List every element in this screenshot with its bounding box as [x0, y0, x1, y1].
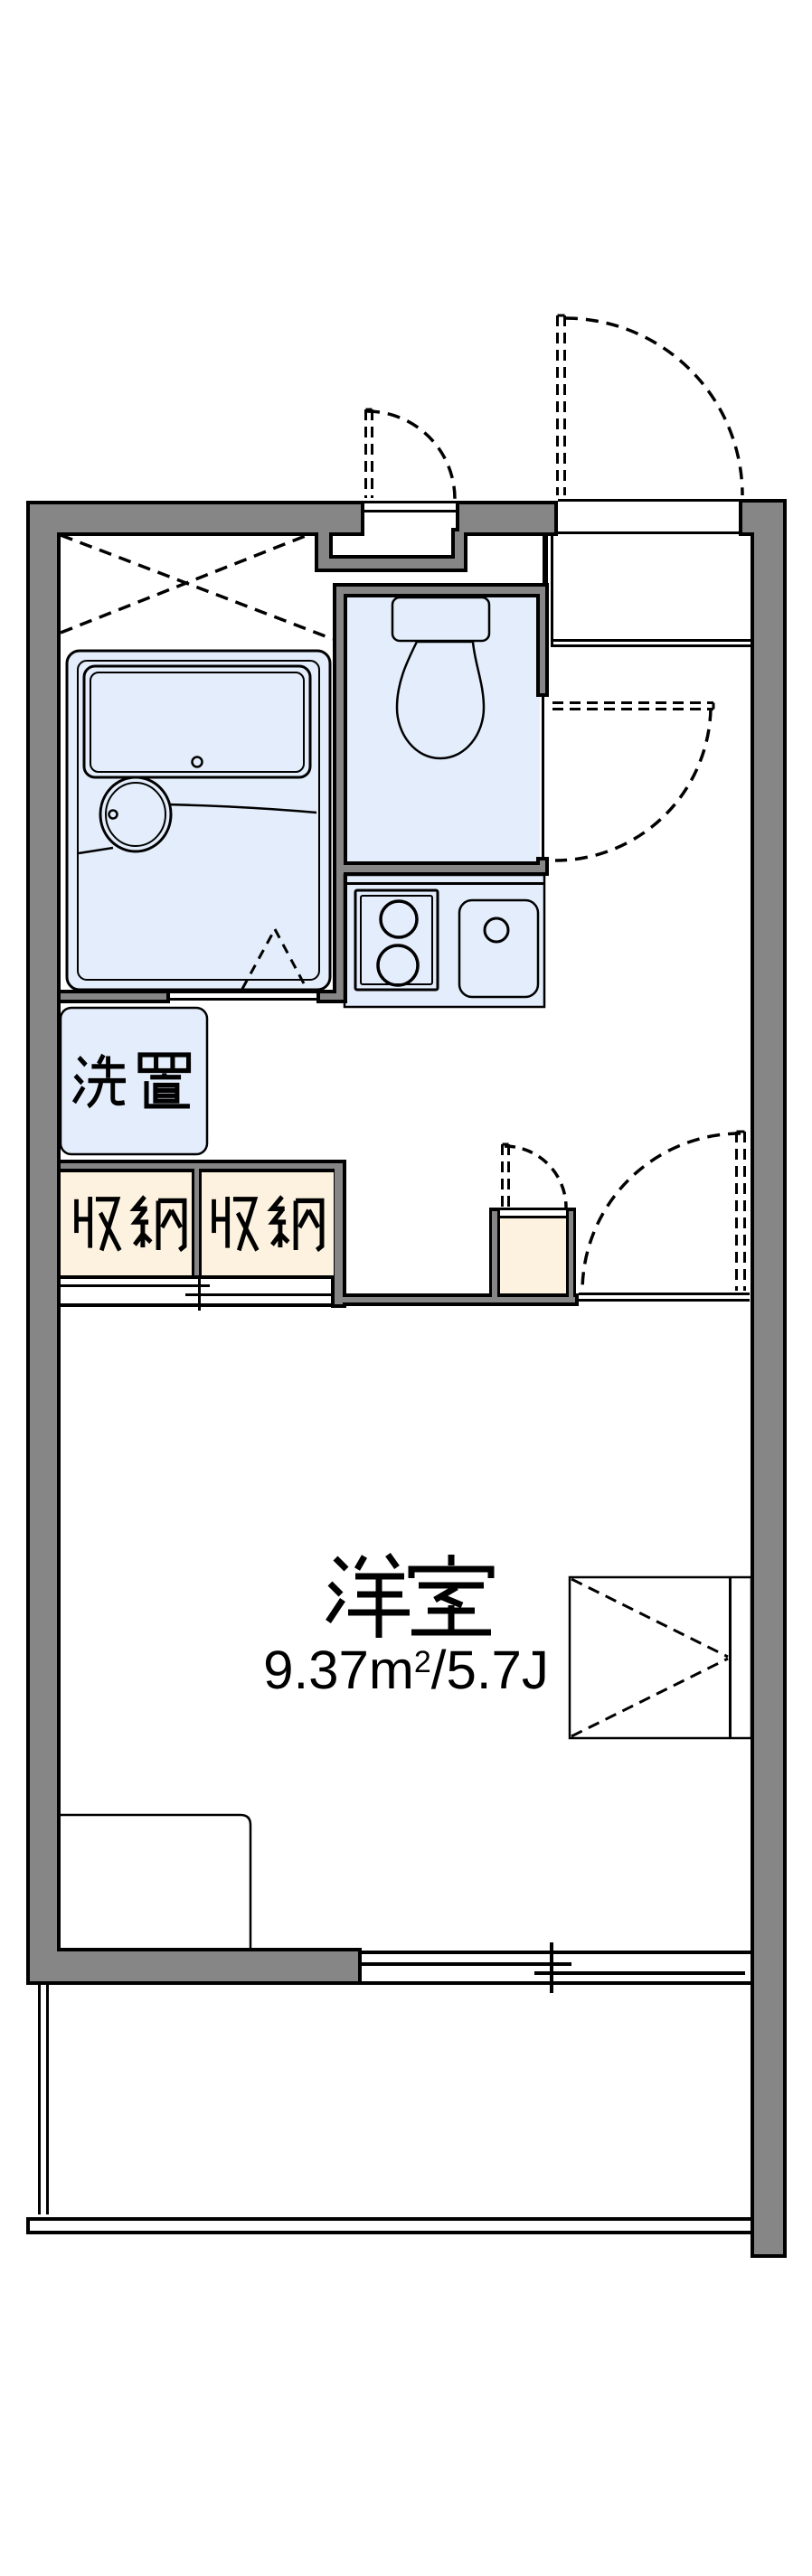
svg-text:9.37m2/5.7J: 9.37m2/5.7J	[263, 1640, 549, 1700]
